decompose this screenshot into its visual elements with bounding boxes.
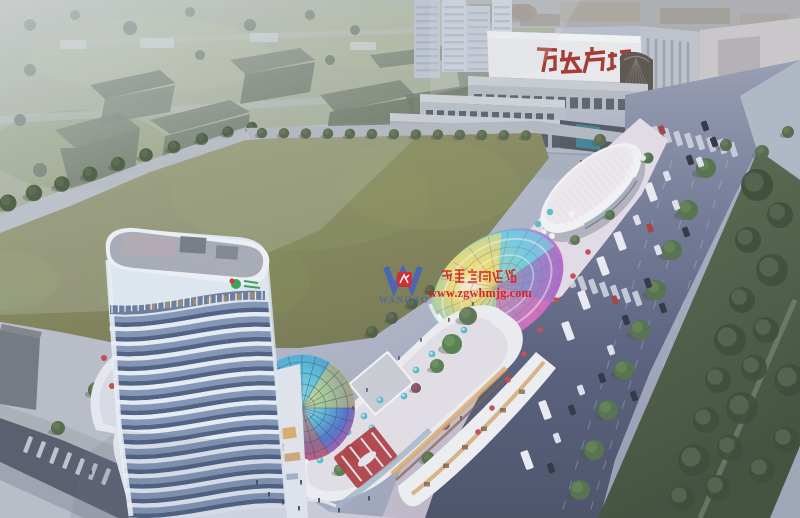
svg-text:WANHAO: WANHAO	[379, 295, 430, 305]
svg-text:www.zgwhmjg.com: www.zgwhmjg.com	[428, 286, 532, 300]
